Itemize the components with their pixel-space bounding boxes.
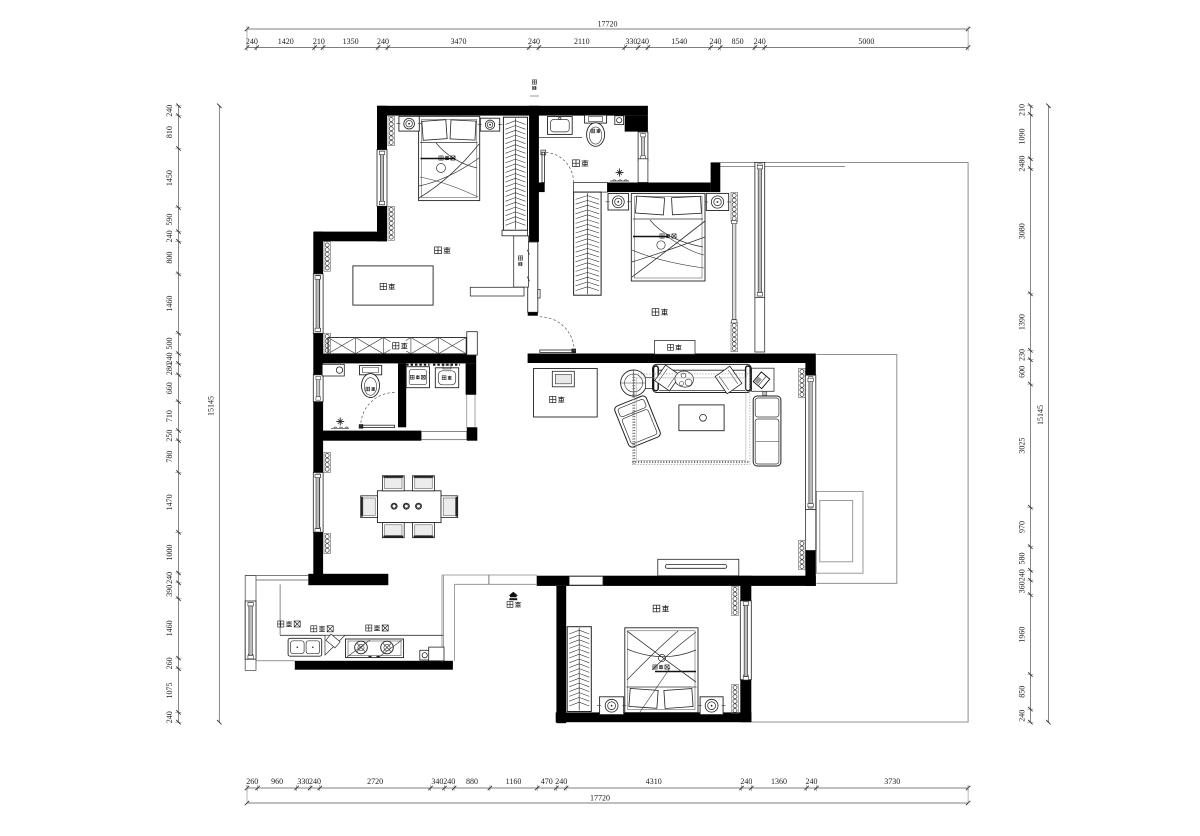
svg-text:240: 240 [165, 353, 174, 365]
svg-text:1350: 1350 [343, 37, 359, 46]
svg-text:5000: 5000 [858, 37, 874, 46]
svg-text:240: 240 [1018, 710, 1027, 722]
svg-text:850: 850 [732, 37, 744, 46]
svg-text:970: 970 [1018, 521, 1027, 533]
svg-text:230: 230 [1018, 349, 1027, 361]
svg-text:240: 240 [754, 37, 766, 46]
svg-text:1460: 1460 [165, 296, 174, 312]
svg-text:4310: 4310 [646, 777, 662, 786]
svg-text:240: 240 [246, 37, 258, 46]
svg-text:240: 240 [637, 37, 649, 46]
svg-text:1460: 1460 [165, 620, 174, 636]
svg-text:600: 600 [1018, 366, 1027, 378]
svg-text:1090: 1090 [1018, 129, 1027, 145]
svg-text:240: 240 [710, 37, 722, 46]
svg-text:470: 470 [541, 777, 553, 786]
svg-text:240: 240 [165, 572, 174, 584]
svg-text:3470: 3470 [451, 37, 467, 46]
svg-text:390: 390 [165, 585, 174, 597]
svg-text:17720: 17720 [598, 20, 618, 29]
svg-text:330: 330 [625, 37, 637, 46]
svg-text:710: 710 [165, 410, 174, 422]
svg-text:500: 500 [165, 338, 174, 350]
svg-text:240: 240 [443, 777, 455, 786]
svg-text:240: 240 [528, 37, 540, 46]
svg-text:880: 880 [466, 777, 478, 786]
svg-text:3080: 3080 [1018, 223, 1027, 239]
svg-text:960: 960 [271, 777, 283, 786]
svg-text:1420: 1420 [278, 37, 294, 46]
svg-text:240: 240 [740, 777, 752, 786]
svg-text:580: 580 [1018, 553, 1027, 565]
svg-text:660: 660 [165, 382, 174, 394]
svg-text:210: 210 [1018, 104, 1027, 116]
svg-text:780: 780 [165, 451, 174, 463]
svg-text:240: 240 [377, 37, 389, 46]
svg-text:240: 240 [309, 777, 321, 786]
svg-text:1470: 1470 [165, 494, 174, 510]
svg-text:2480: 2480 [1018, 156, 1027, 172]
svg-text:330: 330 [297, 777, 309, 786]
svg-text:250: 250 [165, 430, 174, 442]
svg-text:280: 280 [165, 363, 174, 375]
svg-text:260: 260 [165, 657, 174, 669]
svg-text:2720: 2720 [367, 777, 383, 786]
svg-text:1540: 1540 [671, 37, 687, 46]
svg-text:810: 810 [165, 126, 174, 138]
svg-text:1075: 1075 [165, 683, 174, 699]
svg-text:3025: 3025 [1018, 438, 1027, 454]
svg-text:1960: 1960 [1018, 627, 1027, 643]
svg-text:360: 360 [1018, 581, 1027, 593]
svg-text:1360: 1360 [771, 777, 787, 786]
svg-text:850: 850 [1018, 686, 1027, 698]
svg-text:15145: 15145 [1036, 405, 1045, 425]
svg-text:240: 240 [165, 105, 174, 117]
svg-text:260: 260 [246, 777, 258, 786]
svg-text:1160: 1160 [506, 777, 522, 786]
svg-text:340: 340 [431, 777, 443, 786]
svg-text:590: 590 [165, 214, 174, 226]
svg-text:240: 240 [165, 711, 174, 723]
svg-text:240: 240 [555, 777, 567, 786]
svg-text:240: 240 [1018, 569, 1027, 581]
svg-text:2110: 2110 [574, 37, 590, 46]
svg-text:1450: 1450 [165, 170, 174, 186]
svg-text:240: 240 [165, 230, 174, 242]
svg-text:210: 210 [313, 37, 325, 46]
svg-text:240: 240 [806, 777, 818, 786]
svg-text:3730: 3730 [884, 777, 900, 786]
svg-text:15145: 15145 [207, 396, 216, 416]
svg-text:1000: 1000 [165, 545, 174, 561]
svg-text:800: 800 [165, 252, 174, 264]
svg-text:1390: 1390 [1018, 314, 1027, 330]
svg-text:17720: 17720 [590, 794, 610, 803]
